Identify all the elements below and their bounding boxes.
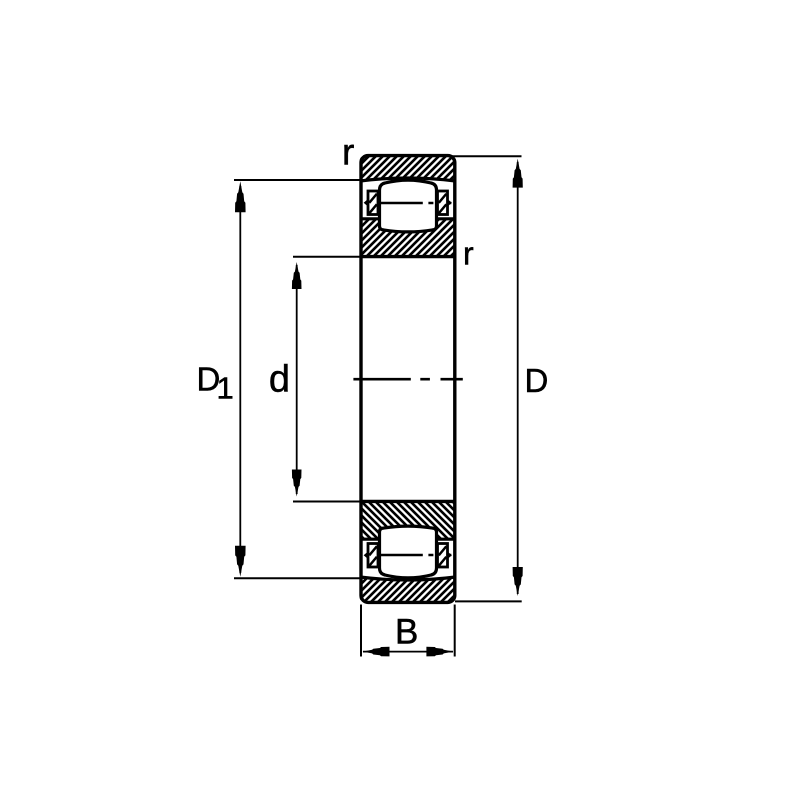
svg-text:B: B (395, 613, 418, 652)
svg-text:d: d (269, 359, 290, 401)
svg-text:1: 1 (217, 370, 234, 405)
svg-text:D: D (525, 362, 549, 399)
svg-text:r: r (342, 131, 354, 172)
svg-text:r: r (463, 235, 474, 271)
